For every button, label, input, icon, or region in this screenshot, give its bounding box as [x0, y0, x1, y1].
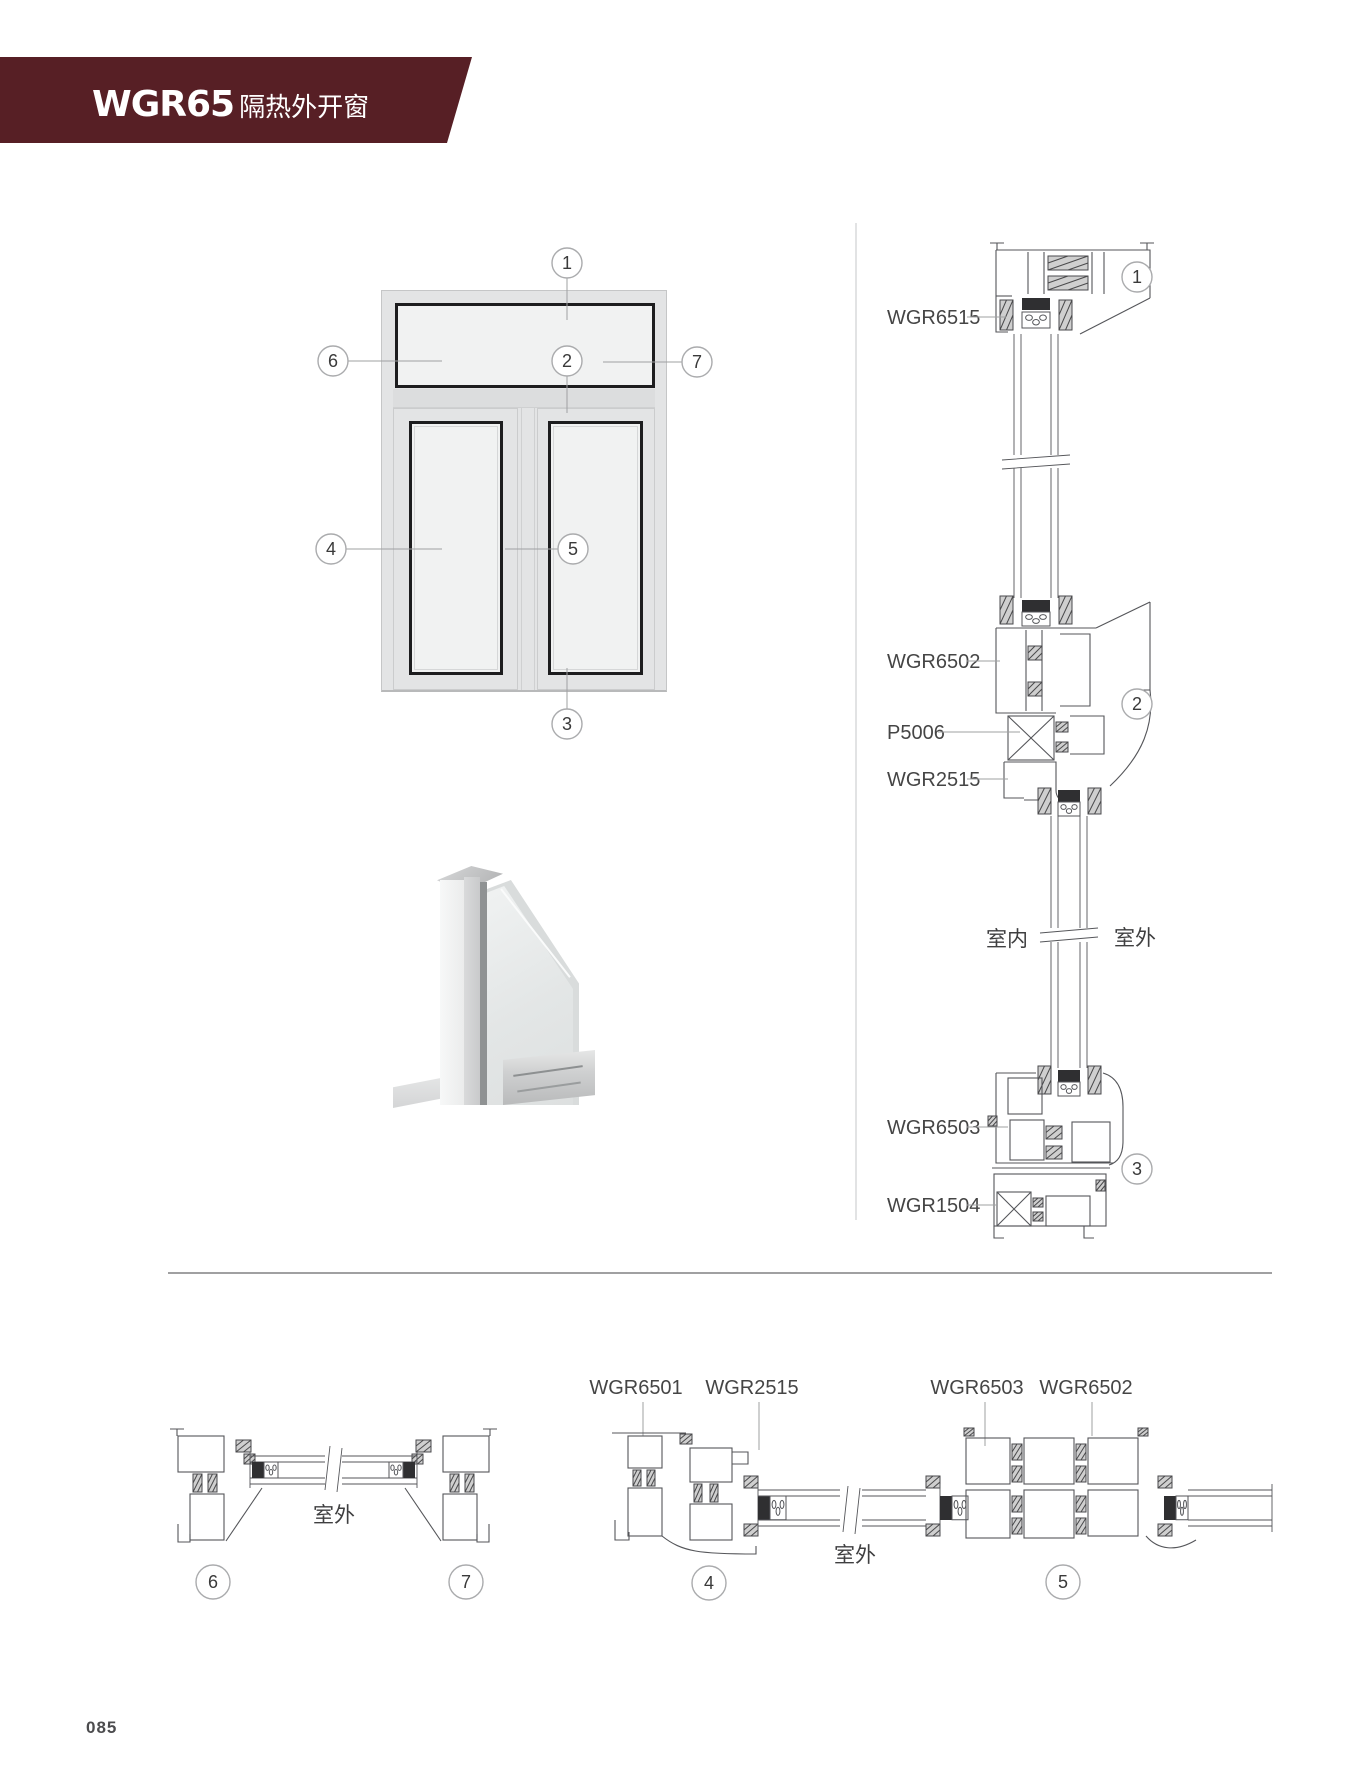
label-wgr6502: WGR6502 [887, 651, 980, 673]
vertical-section-drawing: 室内 室外 [770, 215, 1190, 1285]
left-jamb-profile [170, 1429, 224, 1542]
glass-break-symbol-right-section [843, 1486, 860, 1534]
profile-3d-render [385, 770, 640, 1105]
callout-5: 5 [558, 534, 588, 564]
upper-glazing-unit [1002, 334, 1070, 598]
svg-text:6: 6 [208, 1572, 218, 1592]
svg-text:7: 7 [461, 1572, 471, 1592]
outdoor-label-right-section: 室外 [834, 1544, 876, 1567]
svg-text:2: 2 [562, 351, 572, 371]
outdoor-label-left-section: 室外 [313, 1504, 355, 1527]
glass-break-symbol-lower [1040, 928, 1098, 942]
adapter-sash-profile [662, 1434, 756, 1554]
right-jamb-profile [443, 1429, 497, 1542]
callout-section-2: 2 [1122, 689, 1152, 719]
frame-jamb-profile-right-section [612, 1433, 686, 1540]
right-section-labels: WGR6501 WGR2515 WGR6503 WGR6502 [589, 1377, 1132, 1450]
callout-section-1: 1 [1122, 262, 1152, 292]
svg-text:2: 2 [1132, 694, 1142, 714]
svg-text:1: 1 [562, 253, 572, 273]
label-wgr6503-bottom: WGR6503 [930, 1377, 1023, 1399]
svg-text:3: 3 [1132, 1159, 1142, 1179]
svg-text:6: 6 [328, 351, 338, 371]
wgr2515-adapter [1004, 762, 1066, 802]
product-model: WGR65 [92, 87, 234, 123]
catalog-page: WGR65 隔热外开窗 1 6 2 [0, 0, 1359, 1771]
svg-text:5: 5 [568, 539, 578, 559]
glass-break-symbol-upper [1002, 455, 1070, 469]
glass-break-symbol [325, 1446, 342, 1492]
svg-text:5: 5 [1058, 1572, 1068, 1592]
vertical-section-labels: WGR6515 WGR6502 P5006 WGR2515 WGR6503 WG… [887, 307, 1020, 1217]
label-wgr6502-bottom: WGR6502 [1039, 1377, 1132, 1399]
callout-section-3: 3 [1122, 1154, 1152, 1184]
svg-text:7: 7 [692, 352, 702, 372]
svg-text:3: 3 [562, 714, 572, 734]
callout-section-7: 7 [449, 1565, 483, 1599]
render-frame-side-face [440, 880, 464, 1105]
page-number: 085 [86, 1718, 117, 1738]
elevation-leader-lines [346, 278, 682, 709]
mullion-assembly [926, 1428, 1196, 1548]
callout-7: 7 [682, 347, 712, 377]
callout-2: 2 [552, 346, 582, 376]
sash-bottom-profile [988, 1066, 1123, 1165]
product-subtitle: 隔热外开窗 [239, 94, 369, 120]
indoor-label: 室内 [986, 928, 1028, 951]
outdoor-label-vertical: 室外 [1114, 927, 1156, 950]
svg-text:4: 4 [326, 539, 336, 559]
horizontal-section-right-drawing: WGR6501 WGR2515 WGR6503 WGR6502 [555, 1360, 1305, 1610]
svg-text:4: 4 [704, 1573, 714, 1593]
section-divider-line [168, 1272, 1272, 1274]
lower-glazing-unit [1038, 788, 1101, 1068]
callout-4: 4 [316, 534, 346, 564]
label-wgr6501: WGR6501 [589, 1377, 682, 1399]
label-wgr6503: WGR6503 [887, 1117, 980, 1139]
elevation-callouts-overlay: 1 6 2 7 4 5 3 [300, 230, 730, 770]
label-wgr6515: WGR6515 [887, 307, 980, 329]
label-wgr2515: WGR2515 [887, 769, 980, 791]
glazing-strip-left [744, 1476, 926, 1536]
callout-6: 6 [318, 346, 348, 376]
svg-text:1: 1 [1132, 267, 1142, 287]
sill-profile [992, 1168, 1110, 1238]
callout-3: 3 [552, 709, 582, 739]
header-banner: WGR65 隔热外开窗 [0, 57, 480, 143]
callout-section-4: 4 [692, 1566, 726, 1600]
callout-section-6: 6 [196, 1565, 230, 1599]
horizontal-section-left-drawing: 室外 6 7 [150, 1395, 530, 1610]
label-p5006: P5006 [887, 722, 945, 744]
label-wgr1504: WGR1504 [887, 1195, 980, 1217]
render-glazing-gasket [480, 882, 487, 1105]
label-wgr2515-bottom: WGR2515 [705, 1377, 798, 1399]
p5006-reinforcement [1008, 716, 1104, 760]
glazing-strip-right [1188, 1484, 1272, 1532]
callout-section-5: 5 [1046, 1565, 1080, 1599]
render-frame-front-face [464, 877, 480, 1105]
callout-1: 1 [552, 248, 582, 278]
